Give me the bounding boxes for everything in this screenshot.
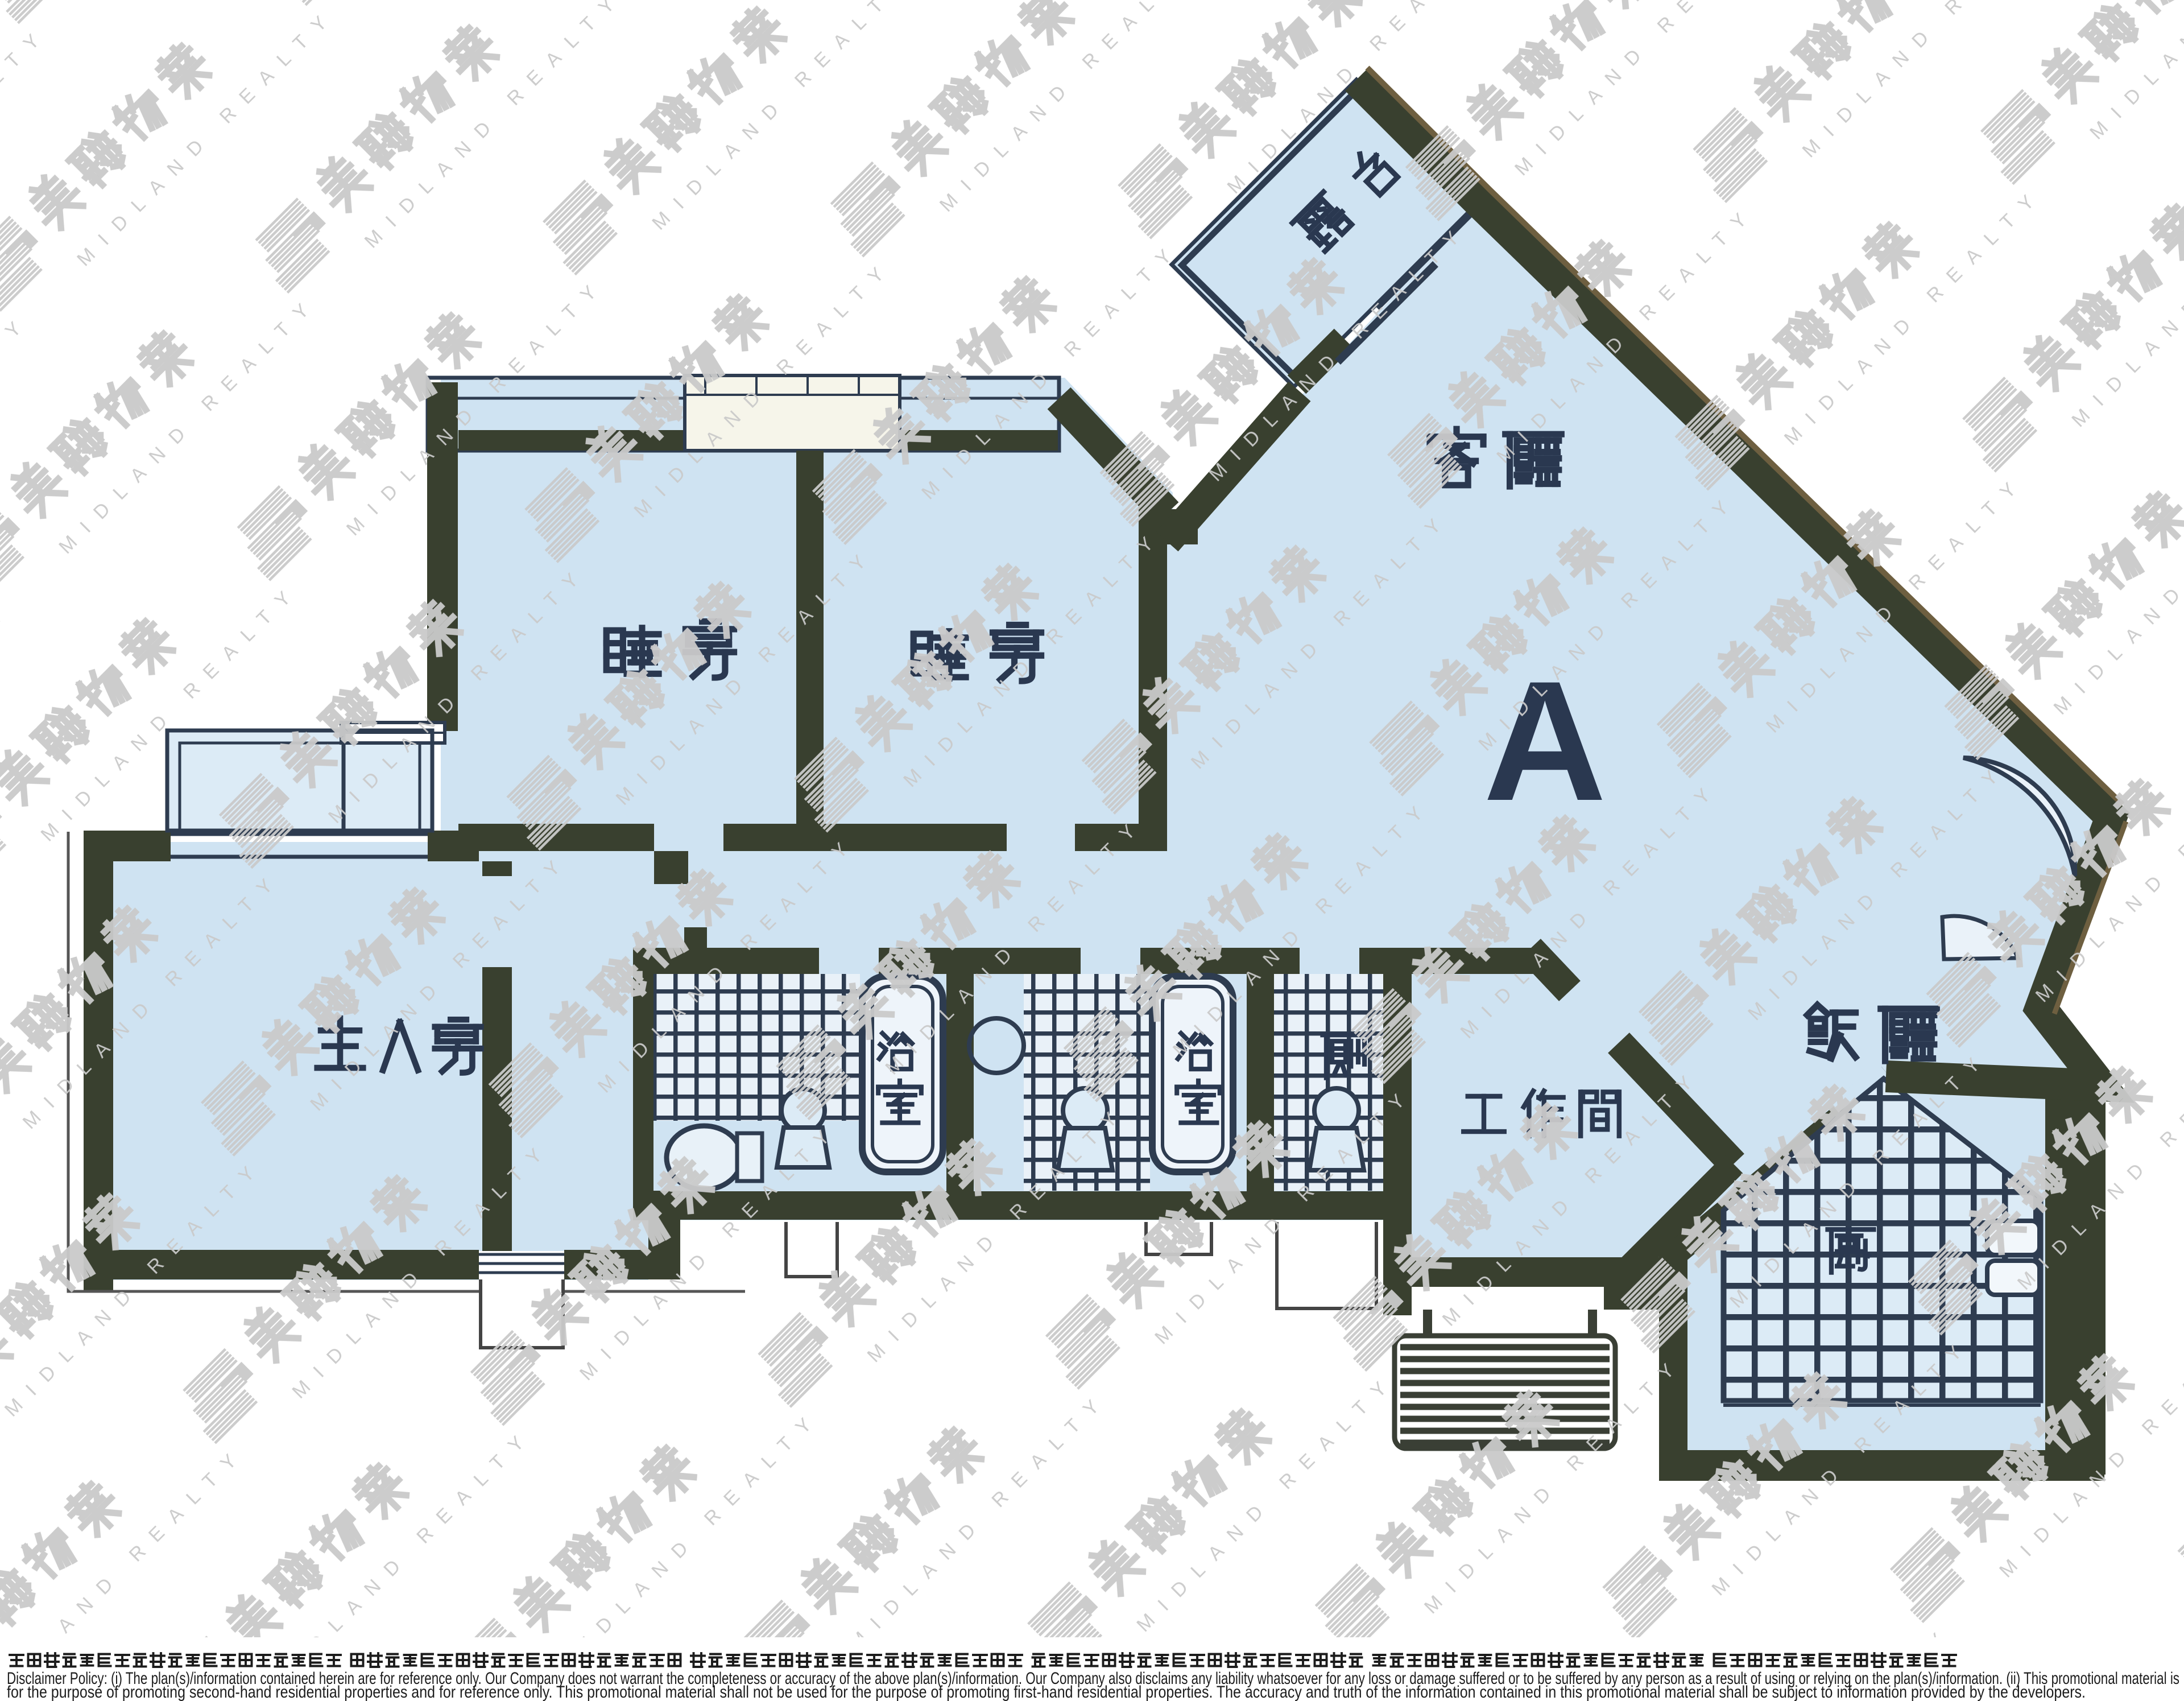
svg-text:for the purpose of promoting s: for the purpose of promoting second-hand…	[7, 1683, 2086, 1701]
